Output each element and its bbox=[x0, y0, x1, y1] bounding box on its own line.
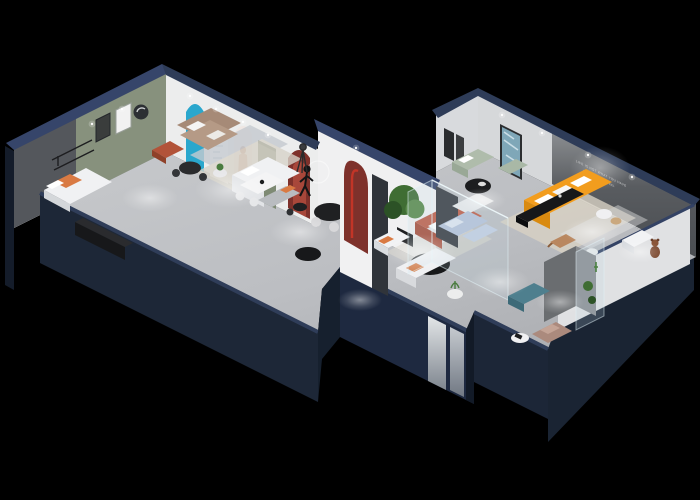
j-red-arch bbox=[344, 161, 368, 254]
isometric-floorplan-svg: LIFE IS NOT WHAT YOU HAVE IT IS WHAT YOU… bbox=[0, 0, 700, 500]
outer-wall-left bbox=[5, 146, 14, 290]
round-table-decor bbox=[478, 182, 486, 186]
floor-spot-8 bbox=[618, 241, 662, 263]
floor-spot-5 bbox=[470, 267, 530, 297]
floor-spot-10 bbox=[338, 289, 382, 311]
bistro-chair-1 bbox=[172, 169, 180, 177]
niche-black-table bbox=[293, 203, 307, 211]
floor-spot-1 bbox=[195, 172, 265, 208]
console-decor bbox=[558, 194, 561, 197]
bistro-table bbox=[179, 162, 201, 175]
dining-chair-2 bbox=[329, 222, 339, 232]
black-frame-1 bbox=[444, 128, 454, 161]
floor-spot-6 bbox=[536, 290, 584, 314]
floor-spot-9 bbox=[458, 188, 506, 212]
glass-display-cabinet bbox=[576, 238, 604, 330]
round-wall-decor bbox=[134, 105, 149, 120]
niche-chair bbox=[287, 209, 294, 216]
showroom-render: LIFE IS NOT WHAT YOU HAVE IT IS WHAT YOU… bbox=[0, 0, 700, 500]
tree-foliage-2 bbox=[384, 201, 402, 219]
round-side-table-1 bbox=[596, 209, 612, 219]
floor-spot-7 bbox=[564, 218, 620, 246]
plant-side-table bbox=[447, 289, 463, 299]
floor-spot-3 bbox=[122, 184, 178, 212]
mirror-door-panel-1 bbox=[428, 316, 446, 390]
mirror-door-panel-2 bbox=[450, 327, 464, 397]
black-oval-table bbox=[295, 247, 321, 261]
side-table-plant bbox=[217, 164, 224, 171]
floor-spot-2 bbox=[270, 217, 330, 247]
red-arch-pillar bbox=[340, 158, 388, 296]
floor-spot-4 bbox=[384, 234, 456, 270]
